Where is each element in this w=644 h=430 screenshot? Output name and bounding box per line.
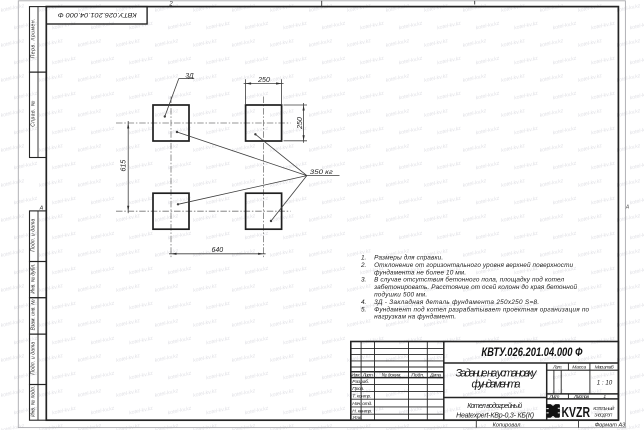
svg-text:350 кг: 350 кг — [310, 169, 334, 176]
svg-text:ЗАВОД РЭП: ЗАВОД РЭП — [594, 412, 613, 417]
svg-text:5.: 5. — [361, 306, 366, 313]
svg-text:3Д: 3Д — [185, 72, 194, 79]
svg-text:1 : 10: 1 : 10 — [597, 379, 613, 386]
svg-text:Лист: Лист — [549, 394, 560, 400]
svg-text:Подп.: Подп. — [411, 372, 424, 378]
svg-text:Разраб.: Разраб. — [352, 379, 369, 385]
svg-text:КОТЕЛЬНЫЙ: КОТЕЛЬНЫЙ — [593, 406, 615, 411]
svg-text:Heatexpert-КВр-0,3- КБ(К): Heatexpert-КВр-0,3- КБ(К) — [456, 412, 534, 419]
svg-text:Дата: Дата — [429, 372, 441, 378]
svg-text:4.: 4. — [361, 299, 366, 306]
svg-text:2.: 2. — [360, 262, 366, 269]
svg-text:Лист: Лист — [362, 372, 373, 378]
svg-text:нагрузкам на фундамент.: нагрузкам на фундамент. — [374, 313, 456, 321]
svg-text:Утв.: Утв. — [352, 415, 362, 421]
svg-text:1: 1 — [603, 394, 606, 400]
svg-text:3Д - Закладная деталь фундамен: 3Д - Закладная деталь фундамента 250х250… — [374, 298, 539, 306]
svg-text:Взам. инв. №: Взам. инв. № — [30, 299, 36, 331]
svg-text:КВТУ.026.201.04.000 Ф: КВТУ.026.201.04.000 Ф — [481, 345, 582, 359]
svg-text:Задание на установку: Задание на установку — [456, 367, 538, 379]
svg-text:2: 2 — [168, 2, 173, 8]
svg-text:Масштаб: Масштаб — [595, 364, 614, 370]
svg-text:640: 640 — [211, 247, 223, 254]
svg-text:Котел водогрейный: Котел водогрейный — [467, 402, 522, 410]
svg-text:1.: 1. — [361, 255, 366, 262]
svg-text:№ докум.: № докум. — [382, 372, 402, 378]
svg-text:KVZR: KVZR — [562, 405, 591, 421]
svg-text:Копировал: Копировал — [493, 423, 522, 429]
svg-text:Т. контр.: Т. контр. — [352, 394, 371, 400]
svg-text:Листов: Листов — [573, 394, 589, 400]
svg-text:подушки 500 мм.: подушки 500 мм. — [374, 291, 427, 299]
svg-text:фундамента: фундамента — [472, 379, 521, 391]
svg-text:Масса: Масса — [572, 364, 586, 370]
svg-text:Фундамент под котел разрабатыв: Фундамент под котел разрабатывает проект… — [374, 305, 589, 313]
svg-text:250: 250 — [257, 77, 270, 84]
svg-text:Подп. и дата: Подп. и дата — [30, 218, 36, 251]
svg-text:забетонировать. Расстояние от: забетонировать. Расстояние от осей колон… — [373, 283, 577, 291]
svg-text:Отклонение от горизонтального: Отклонение от горизонтального уровня вер… — [374, 261, 573, 269]
svg-text:Справ. №: Справ. № — [30, 100, 36, 127]
svg-text:Изм.: Изм. — [351, 372, 360, 378]
svg-text:В случае отсутствия бетонного: В случае отсутствия бетонного пола, площ… — [374, 276, 564, 284]
svg-text:Н. контр.: Н. контр. — [352, 409, 372, 415]
svg-text:фундамента не более 10 мм.: фундамента не более 10 мм. — [374, 268, 466, 276]
svg-text:Нач. отд.: Нач. отд. — [352, 401, 372, 407]
svg-text:Пров.: Пров. — [352, 386, 364, 392]
svg-text:Перв. примен.: Перв. примен. — [30, 18, 36, 58]
svg-text:Формат А3: Формат А3 — [595, 423, 626, 429]
svg-text:КВТУ.026.201.04.000 Ф: КВТУ.026.201.04.000 Ф — [57, 11, 137, 18]
svg-text:Размеры для справки.: Размеры для справки. — [374, 254, 443, 262]
svg-text:Подп. и дата: Подп. и дата — [30, 342, 36, 375]
svg-text:А: А — [625, 205, 630, 211]
svg-text:615: 615 — [121, 160, 128, 172]
svg-text:Лит.: Лит. — [552, 364, 562, 370]
svg-text:250: 250 — [297, 117, 304, 130]
svg-text:Инв. № подл.: Инв. № подл. — [30, 386, 36, 417]
svg-text:Инв. № дубл.: Инв. № дубл. — [30, 264, 36, 294]
svg-text:3.: 3. — [361, 277, 366, 284]
